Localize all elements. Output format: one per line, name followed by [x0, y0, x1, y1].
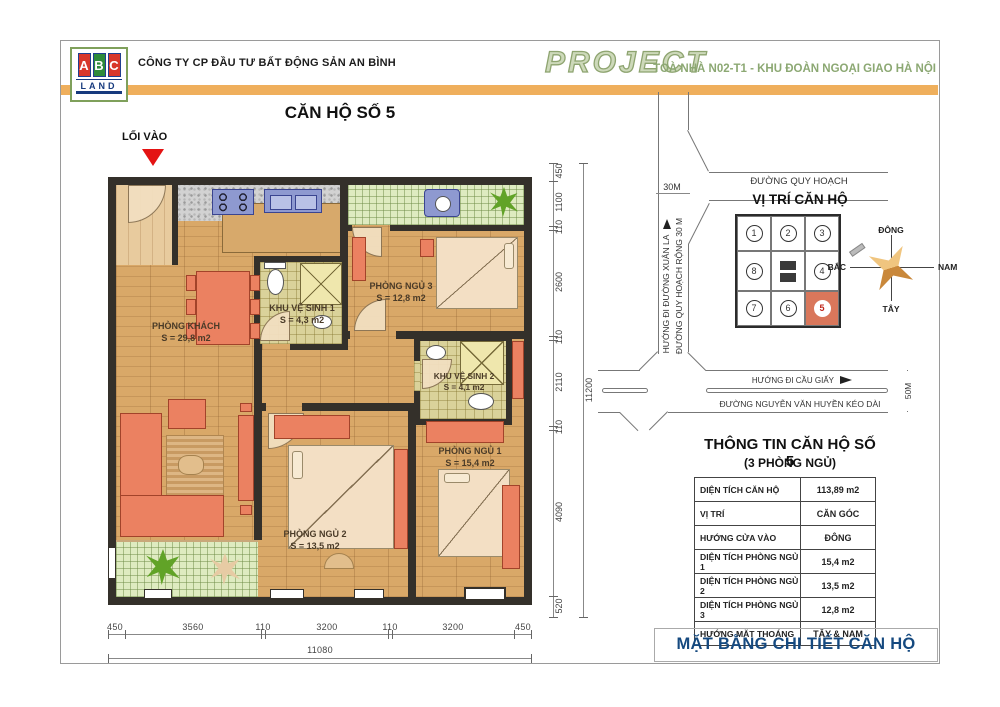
- dim-tick: [531, 654, 532, 663]
- map-title: VỊ TRÍ CĂN HỘ: [710, 192, 890, 207]
- pillow: [504, 243, 514, 269]
- sink-basin: [295, 195, 317, 210]
- wall: [340, 185, 348, 225]
- floor-plan: PHÒNG KHÁCH S = 29,8 m2 KHU VỆ SINH 1 S …: [108, 163, 532, 618]
- room-area: S = 15,4 m2: [422, 458, 518, 470]
- wall: [302, 403, 416, 411]
- elevator: [780, 261, 796, 270]
- road-left-name: ĐƯỜNG QUY HOẠCH RỘNG 30 M: [674, 191, 684, 381]
- row-label: DIỆN TÍCH PHÒNG NGỦ 2: [695, 574, 801, 597]
- window: [144, 589, 172, 599]
- unit-cell-6: 6: [771, 291, 805, 326]
- wall: [254, 350, 262, 403]
- wall: [408, 411, 416, 597]
- room-label-bed3: PHÒNG NGỦ 3 S = 12,8 m2: [348, 281, 454, 304]
- row-value: ĐÔNG: [801, 526, 875, 549]
- dim-total-label: 11200: [584, 368, 594, 412]
- dim-total-label: 11080: [290, 645, 350, 655]
- road-bottom-width: 50M: [903, 371, 913, 411]
- unit-number: 3: [814, 225, 831, 242]
- wardrobe-icon: [502, 485, 520, 569]
- room-area: S = 12,8 m2: [348, 293, 454, 305]
- room-label-living: PHÒNG KHÁCH S = 29,8 m2: [126, 321, 246, 344]
- washing-machine-icon: [424, 189, 460, 217]
- closet-icon: [512, 341, 524, 399]
- road-bottom-direction: HƯỚNG ĐI CẦU GIẤY: [726, 376, 834, 385]
- road-line: [709, 172, 888, 173]
- road-top-label: ĐƯỜNG QUY HOẠCH: [724, 176, 874, 187]
- room-label-bed1: PHÒNG NGỦ 1 S = 15,4 m2: [422, 446, 518, 469]
- wardrobe-icon: [394, 449, 408, 549]
- room-label-bed2: PHÒNG NGỦ 2 S = 13,5 m2: [260, 529, 370, 552]
- building-title: TOÀ NHÀ N02-T1 - KHU ĐOÀN NGOẠI GIAO HÀ …: [630, 63, 936, 75]
- row-label: HƯỚNG CỬA VÀO: [695, 526, 801, 549]
- road-left-direction-text: HƯỚNG ĐI ĐƯỜNG XUÂN LA: [661, 235, 671, 353]
- row-value: CĂN GÓC: [801, 502, 875, 525]
- dim-label: 3560: [173, 622, 213, 632]
- row-value: 13,5 m2: [801, 574, 875, 597]
- median-line: [706, 388, 888, 393]
- direction-arrow-icon: [840, 376, 852, 384]
- room-area: S = 29,8 m2: [126, 333, 246, 345]
- road-left-direction: HƯỚNG ĐI ĐƯỜNG XUÂN LA: [661, 191, 671, 381]
- road-bottom-name: ĐƯỜNG NGUYỄN VĂN HUYỀN KÉO DÀI: [700, 399, 900, 409]
- compass-west: TÂY: [866, 304, 916, 314]
- row-label: DIỆN TÍCH PHÒNG NGỦ 3: [695, 598, 801, 621]
- dim-label: 110: [554, 319, 564, 355]
- speaker-icon: [240, 403, 252, 412]
- road-line: [658, 92, 659, 354]
- compass-south: NAM: [938, 262, 972, 272]
- road-line: [688, 244, 689, 352]
- wall: [390, 225, 524, 231]
- wall: [254, 403, 266, 411]
- company-name: CÔNG TY CP ĐẦU TƯ BẤT ĐỘNG SẢN AN BÌNH: [138, 57, 396, 69]
- table-row: DIỆN TÍCH CĂN HỘ113,89 m2: [695, 478, 875, 502]
- kitchen-sink-icon: [264, 189, 322, 213]
- footer-title: MẶT BẰNG CHI TIẾT CĂN HỘ: [654, 635, 938, 654]
- toilet-icon: [267, 269, 284, 295]
- row-value: 15,4 m2: [801, 550, 875, 573]
- room-name: PHÒNG NGỦ 3: [348, 281, 454, 293]
- dim-label: 450: [98, 622, 132, 632]
- table-row: DIỆN TÍCH PHÒNG NGỦ 312,8 m2: [695, 598, 875, 622]
- table-row: DIỆN TÍCH PHÒNG NGỦ 213,5 m2: [695, 574, 875, 598]
- dim-label: 110: [374, 622, 406, 632]
- building-row: 1 2 3: [737, 216, 839, 251]
- room-area: S = 4,1 m2: [418, 382, 510, 393]
- nightstand-icon: [420, 239, 434, 257]
- room-name: KHU VỆ SINH 2: [418, 371, 510, 382]
- speaker-icon: [240, 505, 252, 515]
- row-value: 12,8 m2: [801, 598, 875, 621]
- room-name: PHÒNG NGỦ 2: [260, 529, 370, 541]
- road-line: [688, 92, 689, 130]
- pillow: [292, 451, 303, 479]
- direction-arrow-icon: [663, 219, 671, 229]
- building-row: 7 6 5: [737, 291, 839, 326]
- tv-cabinet-icon: [238, 415, 254, 501]
- chair-icon: [250, 275, 260, 291]
- median-line: [602, 388, 648, 393]
- toilet-tank: [264, 262, 286, 269]
- dim-label: 2600: [554, 264, 564, 300]
- table-row: HƯỚNG CỬA VÀOĐÔNG: [695, 526, 875, 550]
- room-label-bath2: KHU VỆ SINH 2 S = 4,1 m2: [418, 371, 510, 393]
- window: [354, 589, 384, 599]
- pillow: [444, 473, 470, 483]
- unit-cell-3: 3: [805, 216, 839, 251]
- door-gap: [262, 344, 290, 350]
- washer-door: [435, 196, 451, 212]
- dim-label: 3200: [433, 622, 473, 632]
- room-area: S = 13,5 m2: [260, 541, 370, 553]
- unit-cell-1: 1: [737, 216, 771, 251]
- stove-icon: [212, 189, 254, 215]
- unit-number: 6: [780, 300, 797, 317]
- table-row: DIỆN TÍCH PHÒNG NGỦ 115,4 m2: [695, 550, 875, 574]
- table-row: VỊ TRÍCĂN GÓC: [695, 502, 875, 526]
- logo-land-text: LAND: [76, 79, 122, 94]
- dim-line-total: [108, 658, 532, 659]
- wardrobe-icon: [426, 421, 504, 443]
- shower-icon: [300, 263, 342, 305]
- dim-label: 110: [554, 209, 564, 245]
- dim-tick: [108, 654, 109, 663]
- unit-cell-7: 7: [737, 291, 771, 326]
- logo-letter-c: C: [108, 53, 121, 77]
- entrance-label: LỐI VÀO: [122, 131, 167, 143]
- apartment-info-table: DIỆN TÍCH CĂN HỘ113,89 m2 VỊ TRÍCĂN GÓC …: [694, 477, 876, 646]
- wall: [254, 411, 262, 540]
- room-area: S = 4,3 m2: [256, 315, 348, 327]
- sink-icon: [426, 345, 446, 360]
- road-line: [598, 370, 640, 371]
- room-name: PHÒNG KHÁCH: [126, 321, 246, 333]
- apartment-title: CĂN HỘ SỐ 5: [220, 103, 460, 123]
- unit-number: 7: [746, 300, 763, 317]
- dim-line: [108, 634, 532, 635]
- unit-number: 2: [780, 225, 797, 242]
- info-subtitle: (3 PHÒNG NGỦ): [700, 456, 880, 470]
- toilet-icon: [468, 393, 494, 410]
- row-value: 113,89 m2: [801, 478, 875, 501]
- dim-tick: [579, 617, 588, 618]
- unit-cell-2: 2: [771, 216, 805, 251]
- unit-number: 1: [746, 225, 763, 242]
- sofa-icon: [120, 495, 224, 537]
- row-label: VỊ TRÍ: [695, 502, 801, 525]
- dim-label: 450: [503, 622, 543, 632]
- road-line: [668, 412, 888, 413]
- bottom-balcony-floor: [116, 540, 258, 597]
- road-width-label: 30M: [654, 182, 690, 192]
- window: [270, 589, 304, 599]
- road-line: [598, 412, 620, 413]
- room-name: PHÒNG NGỦ 1: [422, 446, 518, 458]
- header-accent-bar: [61, 85, 938, 95]
- road-line: [706, 370, 888, 371]
- elevator-core: [771, 251, 805, 291]
- wardrobe-icon: [352, 237, 366, 281]
- unit-cell-8: 8: [737, 251, 771, 291]
- chair-icon: [186, 299, 196, 315]
- room-name: KHU VỆ SINH 1: [256, 303, 348, 315]
- compass-east: ĐÔNG: [866, 225, 916, 235]
- logo-letter-a: A: [78, 53, 91, 77]
- logo-letter-b: B: [93, 53, 106, 77]
- wall: [172, 185, 178, 265]
- chair-icon: [186, 275, 196, 291]
- compass-north: BẮC: [818, 262, 846, 272]
- logo-letter-tiles: A B C: [72, 53, 126, 77]
- dim-label: 4090: [554, 494, 564, 530]
- dimension-chain-bottom: 450 3560 110 3200 110 3200 450 11080: [108, 622, 532, 666]
- coffee-table-icon: [178, 455, 204, 475]
- dim-label: 2110: [554, 364, 564, 400]
- row-label: DIỆN TÍCH CĂN HỘ: [695, 478, 801, 501]
- unit-number: 8: [746, 263, 763, 280]
- unit-cell-5-highlighted: 5: [805, 291, 839, 326]
- dimension-chain-right: 450 1100 110 2600 110 2110 110 4090 520 …: [545, 163, 605, 619]
- dim-label: 3200: [307, 622, 347, 632]
- window: [464, 587, 506, 601]
- armchair-icon: [168, 399, 206, 429]
- sink-basin: [270, 195, 292, 210]
- dim-label: 520: [554, 588, 564, 624]
- wardrobe-icon: [274, 415, 350, 439]
- row-label: DIỆN TÍCH PHÒNG NGỦ 1: [695, 550, 801, 573]
- unit-number: 5: [814, 300, 831, 317]
- dim-tick: [579, 163, 588, 164]
- dim-label: 110: [554, 409, 564, 445]
- window: [108, 547, 116, 579]
- elevator: [780, 273, 796, 282]
- dim-label: 110: [247, 622, 279, 632]
- room-label-bath1: KHU VỆ SINH 1 S = 4,3 m2: [256, 303, 348, 326]
- abc-land-logo: A B C LAND: [70, 47, 128, 102]
